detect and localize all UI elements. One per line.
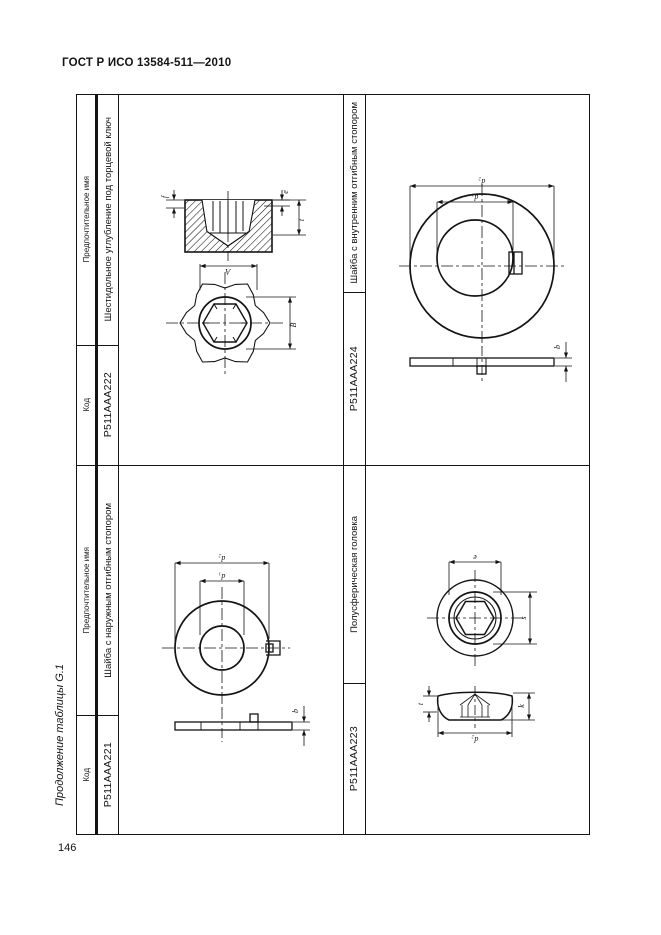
page-number: 146: [58, 842, 76, 854]
entry-code: P511AAA222: [102, 372, 114, 437]
cell-code-e223: P511AAA223: [343, 683, 365, 835]
cell-name-e223: Полусферическая головка: [343, 465, 365, 683]
entry-code: P511AAA221: [102, 742, 114, 807]
cell-code-e224: P511AAA224: [343, 292, 365, 465]
drawing-dome-head: е s t k d₂: [365, 465, 590, 835]
dim-label-e: е: [281, 190, 290, 194]
drawing-washer-external: d₂ d₁ b: [118, 465, 343, 835]
dim-label-e: е: [473, 553, 477, 562]
dim-label-d1: d₁: [218, 572, 225, 581]
dim-label-t: t: [416, 702, 425, 705]
drawing-washer-internal: d₂ d₁ b: [365, 94, 590, 465]
entry-name: Шайба с наружным отгибным стопором: [103, 503, 114, 678]
cell-code-e221: P511AAA221: [98, 715, 118, 835]
dim-label-s: s: [519, 616, 528, 619]
drawing-knob: f е t A B: [118, 94, 343, 465]
entry-code: P511AAA224: [348, 346, 360, 411]
header-name-label: Предпочтительное имя: [82, 547, 91, 633]
dim-label-B: B: [289, 322, 298, 327]
dim-label-k: k: [517, 704, 526, 708]
dim-label-d2: d₂: [218, 554, 225, 563]
table-caption: Продолжение таблицы G.1: [48, 636, 72, 834]
header-cell-name-top: Предпочтительное имя: [76, 94, 96, 345]
dim-label-t: t: [297, 218, 306, 221]
dim-label-b: b: [553, 345, 562, 349]
cell-name-e221: Шайба с наружным отгибным стопором: [98, 465, 118, 715]
cell-name-e224: Шайба с внутренним отгибным стопором: [343, 94, 365, 292]
dim-label-d1: d₁: [471, 193, 478, 202]
header-cell-name-bottom: Предпочтительное имя: [76, 465, 96, 715]
entry-code: P511AAA223: [348, 726, 360, 791]
header-cell-code-bottom: Код: [76, 715, 96, 835]
dim-label-A: A: [225, 267, 231, 276]
dim-label-b: b: [291, 709, 300, 713]
doc-header: ГОСТ Р ИСО 13584-511—2010: [62, 57, 231, 69]
entry-name: Шайба с внутренним отгибным стопором: [349, 102, 360, 283]
entry-name: Шестидольное углубление под торцевой клю…: [103, 117, 114, 321]
cell-code-e222: P511AAA222: [98, 345, 118, 465]
cell-name-e222: Шестидольное углубление под торцевой клю…: [98, 94, 118, 345]
table-caption-text: Продолжение таблицы G.1: [54, 664, 66, 806]
entry-name: Полусферическая головка: [349, 516, 360, 633]
header-name-label: Предпочтительное имя: [82, 176, 91, 262]
dim-label-d2: d₂: [478, 177, 485, 186]
dim-label-f: f: [160, 194, 169, 198]
header-code-label: Код: [82, 398, 91, 412]
header-cell-code-top: Код: [76, 345, 96, 465]
dim-label-d2: d₂: [471, 735, 478, 744]
header-code-label: Код: [82, 768, 91, 782]
document-page: { "page": { "doc_header": "ГОСТ Р ИСО 13…: [0, 0, 661, 935]
